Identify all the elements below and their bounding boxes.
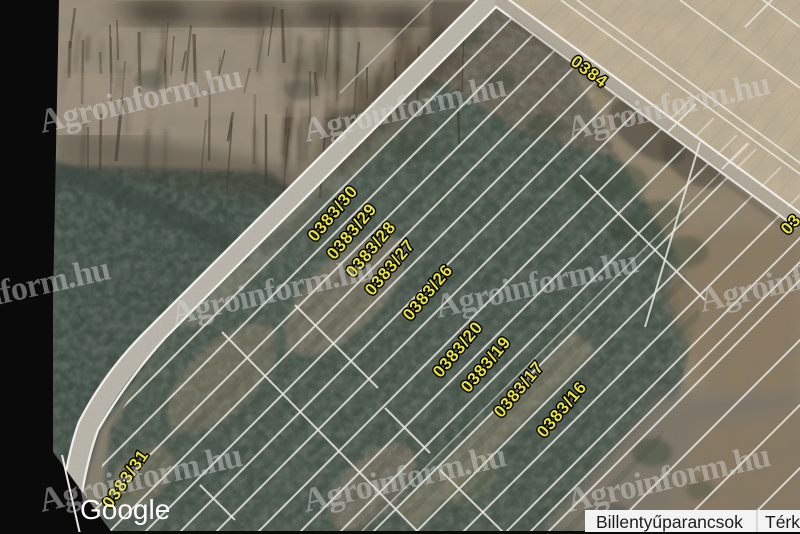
svg-text:Térk: Térk — [765, 512, 800, 532]
svg-text:Billentyűparancsok: Billentyűparancsok — [596, 512, 743, 532]
svg-text:Google: Google — [80, 494, 170, 525]
